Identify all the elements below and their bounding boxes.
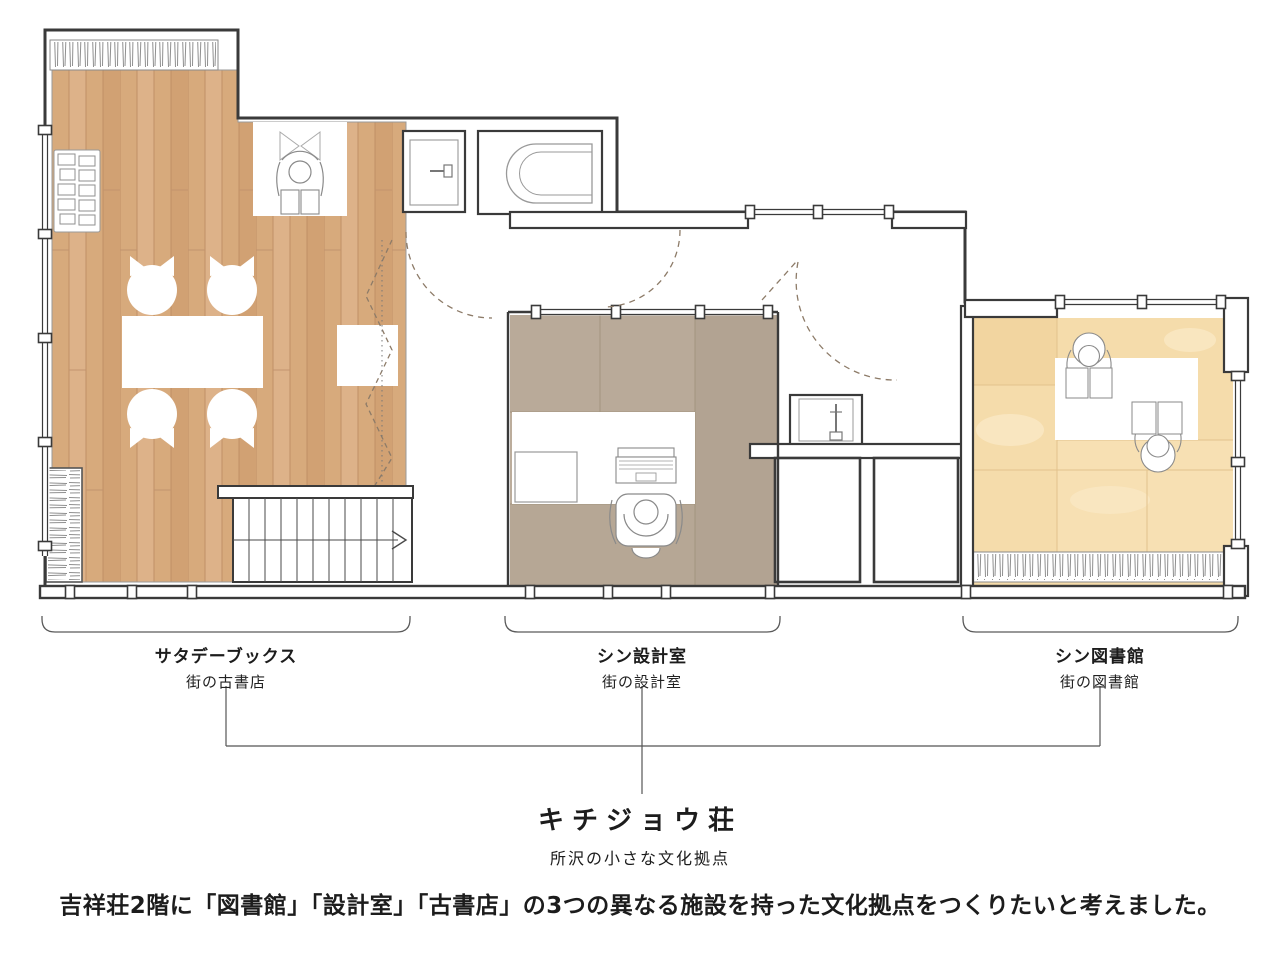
wall-boxes-shelf-icon	[54, 150, 100, 232]
area-label-bookstore: サタデーブックス 街の古書店	[76, 642, 376, 692]
area-label-design-office: シン設計室 街の設計室	[492, 642, 792, 692]
washroom	[403, 131, 465, 212]
library-name: シン図書館	[950, 642, 1250, 667]
bookshelf-top-icon	[50, 40, 218, 70]
design-office-subtitle: 街の設計室	[492, 671, 792, 692]
annotation-brackets	[42, 616, 1238, 632]
design-office-name: シン設計室	[492, 642, 792, 667]
building-subtitle: 所沢の小さな文化拠点	[340, 845, 940, 869]
area-label-library: シン図書館 街の図書館	[950, 642, 1250, 692]
connector-lines	[226, 686, 1100, 794]
bookshelf-left-icon	[46, 468, 82, 582]
bookstore-name: サタデーブックス	[76, 642, 376, 667]
kitchenette	[790, 395, 862, 448]
page: サタデーブックス 街の古書店 シン設計室 街の設計室 シン図書館 街の図書館 キ…	[0, 0, 1280, 967]
bookstore-subtitle: 街の古書店	[76, 671, 376, 692]
table-icon	[122, 316, 263, 388]
building-title: キチジョウ荘	[340, 800, 940, 837]
toilet-icon	[506, 144, 592, 203]
toilet-room	[478, 131, 602, 214]
reading-person-icon	[253, 122, 347, 216]
laptop-icon	[616, 448, 676, 483]
library-subtitle: 街の図書館	[950, 671, 1250, 692]
storage-rooms	[750, 444, 965, 582]
bookshelf-library-icon	[973, 552, 1233, 582]
stairs-icon	[218, 486, 413, 582]
building-title-block: キチジョウ荘 所沢の小さな文化拠点	[340, 800, 940, 869]
page-caption: 吉祥荘2階に「図書館」「設計室」「古書店」の3つの異なる施設を持った文化拠点をつ…	[0, 886, 1280, 920]
